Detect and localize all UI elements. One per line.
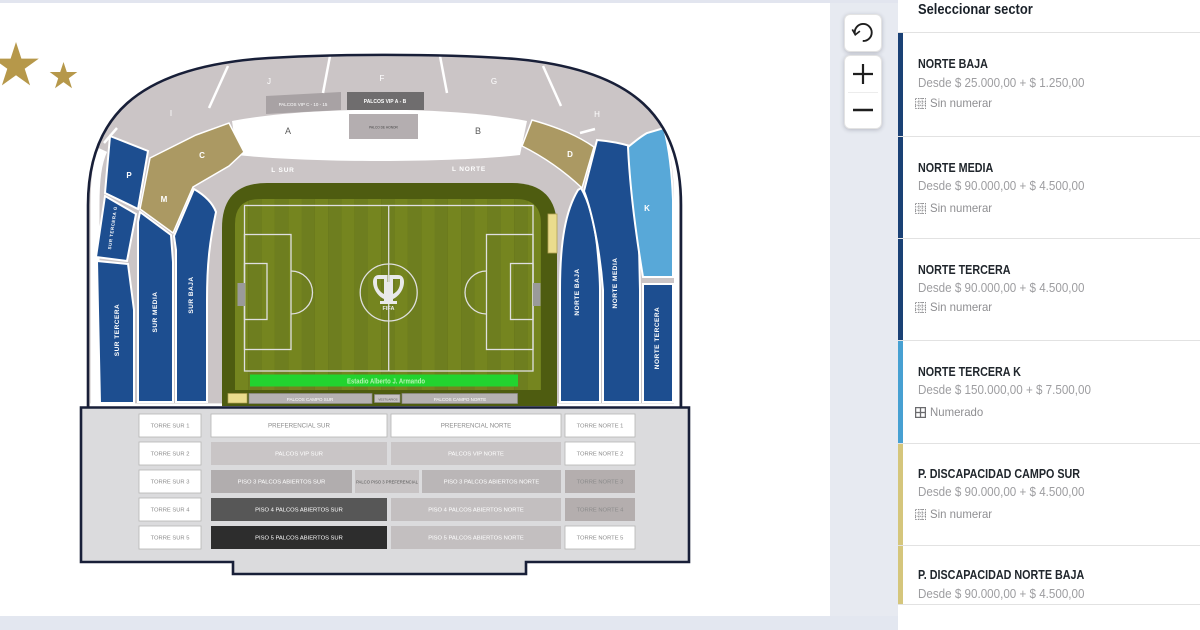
svg-text:G: G: [491, 77, 497, 86]
svg-text:PALCOS VIP A - B: PALCOS VIP A - B: [364, 99, 407, 105]
svg-text:TORRE NORTE 5: TORRE NORTE 5: [577, 536, 624, 542]
svg-text:SUR TERCERA: SUR TERCERA: [114, 304, 121, 356]
svg-text:L NORTE: L NORTE: [452, 166, 486, 173]
svg-text:P: P: [126, 171, 132, 180]
svg-text:SUR BAJA: SUR BAJA: [188, 276, 195, 313]
svg-text:TORRE NORTE 3: TORRE NORTE 3: [577, 480, 624, 486]
svg-text:FIFA: FIFA: [383, 306, 395, 312]
svg-text:I: I: [170, 109, 172, 118]
svg-text:PISO 5 PALCOS ABIERTOS SUR: PISO 5 PALCOS ABIERTOS SUR: [255, 536, 343, 542]
svg-text:VESTUARIOS: VESTUARIOS: [378, 398, 397, 402]
svg-text:SUR MEDIA: SUR MEDIA: [152, 292, 159, 333]
svg-text:PALCOS VIP SUR: PALCOS VIP SUR: [275, 452, 323, 458]
svg-text:PALCOS VIP C - 10 - 15: PALCOS VIP C - 10 - 15: [279, 102, 328, 107]
svg-text:K: K: [644, 204, 650, 213]
svg-text:TORRE SUR 5: TORRE SUR 5: [151, 536, 190, 542]
svg-text:PALCOS CAMPO NORTE: PALCOS CAMPO NORTE: [434, 397, 487, 402]
svg-text:PALCOS CAMPO SUR: PALCOS CAMPO SUR: [287, 397, 334, 402]
svg-text:NORTE BAJA: NORTE BAJA: [574, 268, 581, 315]
svg-text:TORRE NORTE 4: TORRE NORTE 4: [577, 508, 625, 514]
svg-text:NORTE TERCERA: NORTE TERCERA: [654, 307, 661, 369]
svg-text:PISO 3 PALCOS ABIERTOS NORTE: PISO 3 PALCOS ABIERTOS NORTE: [444, 480, 540, 486]
svg-text:NORTE MEDIA: NORTE MEDIA: [612, 258, 619, 309]
svg-text:PISO 4 PALCOS ABIERTOS SUR: PISO 4 PALCOS ABIERTOS SUR: [255, 508, 343, 514]
svg-text:TORRE SUR 4: TORRE SUR 4: [151, 508, 191, 514]
svg-text:C: C: [199, 151, 205, 160]
svg-text:A: A: [285, 126, 291, 136]
svg-text:PISO 4 PALCOS ABIERTOS NORTE: PISO 4 PALCOS ABIERTOS NORTE: [428, 508, 524, 514]
svg-text:TORRE NORTE 1: TORRE NORTE 1: [577, 424, 624, 430]
svg-text:PREFERENCIAL NORTE: PREFERENCIAL NORTE: [441, 423, 511, 430]
svg-text:L SUR: L SUR: [271, 167, 294, 174]
svg-text:TORRE SUR 3: TORRE SUR 3: [151, 480, 190, 486]
svg-text:TORRE SUR 2: TORRE SUR 2: [151, 452, 190, 458]
svg-text:TORRE NORTE 2: TORRE NORTE 2: [577, 452, 624, 458]
svg-text:PALCO DE HONOR: PALCO DE HONOR: [369, 126, 398, 130]
svg-text:B: B: [475, 126, 481, 136]
svg-text:TORRE SUR 1: TORRE SUR 1: [151, 424, 190, 430]
svg-text:H: H: [594, 110, 600, 119]
svg-text:PISO 3 PALCOS ABIERTOS SUR: PISO 3 PALCOS ABIERTOS SUR: [238, 480, 326, 486]
svg-text:F: F: [380, 74, 385, 83]
svg-text:PREFERENCIAL SUR: PREFERENCIAL SUR: [268, 423, 331, 430]
svg-text:Estadio Alberto J. Armando: Estadio Alberto J. Armando: [347, 378, 425, 385]
svg-text:PALCO PISO 3 PREFERENCIAL: PALCO PISO 3 PREFERENCIAL: [356, 480, 418, 485]
svg-text:D: D: [567, 150, 573, 159]
svg-text:PISO 5 PALCOS ABIERTOS NORTE: PISO 5 PALCOS ABIERTOS NORTE: [428, 536, 524, 542]
svg-text:M: M: [161, 195, 168, 204]
svg-text:PALCOS VIP NORTE: PALCOS VIP NORTE: [448, 452, 504, 458]
svg-text:J: J: [267, 77, 271, 86]
